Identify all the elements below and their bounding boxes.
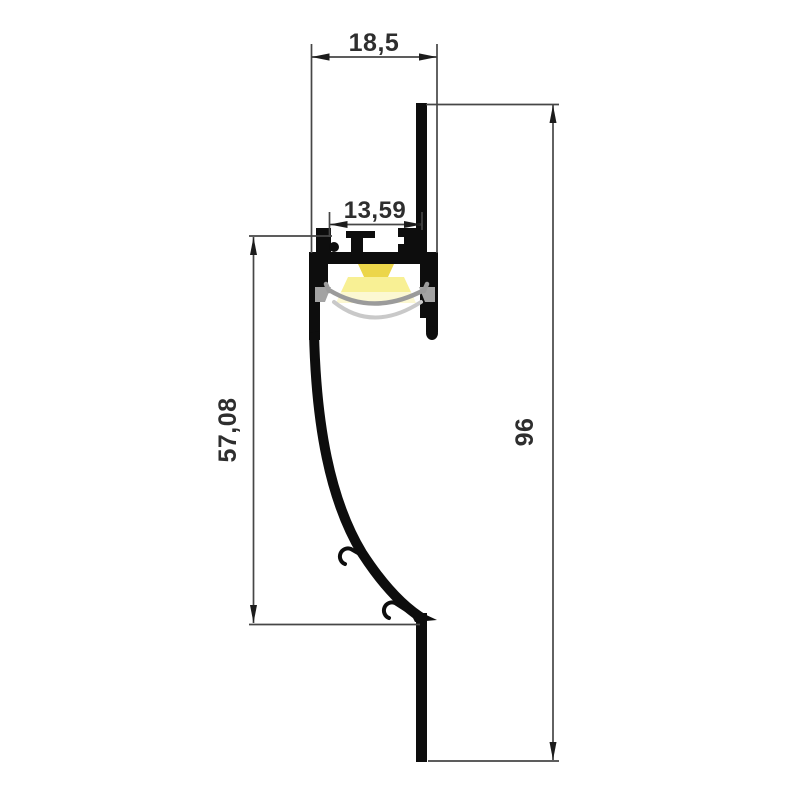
dimension-label-inner-width: 13,59 [344, 197, 407, 224]
curved-front-wall [314, 332, 425, 620]
dimension-label-overall-height: 96 [511, 418, 539, 447]
diffuser-clip-right [424, 284, 427, 291]
arrowhead-bottom [550, 742, 557, 760]
dimension-label-top-width: 18,5 [349, 29, 400, 57]
light-beam-core [358, 264, 394, 277]
arrowhead-bottom [250, 605, 257, 623]
arrowhead-left [312, 53, 330, 60]
channel-right-wall-tip [426, 326, 438, 340]
technical-drawing-canvas: 18,5 13,59 57,08 96 [0, 0, 800, 800]
light-beam-mid [341, 277, 411, 292]
arrowhead-top [250, 237, 257, 255]
back-plate-bottom [416, 613, 427, 762]
dimension-overall-height: 96 [426, 105, 559, 762]
led-profile-cross-section-drawing: 18,5 13,59 57,08 96 [0, 0, 800, 800]
arrowhead-top [550, 105, 557, 123]
arrowhead-right [419, 53, 437, 60]
mounting-clip-right [398, 228, 416, 255]
mounting-clip-left-tab [329, 242, 339, 252]
mounting-clip-middle [346, 231, 375, 255]
diffuser-clip-left [326, 284, 329, 291]
back-plate-top [416, 103, 427, 255]
dimension-label-recess-height: 57,08 [214, 397, 242, 462]
channel-top-wall [309, 252, 438, 264]
